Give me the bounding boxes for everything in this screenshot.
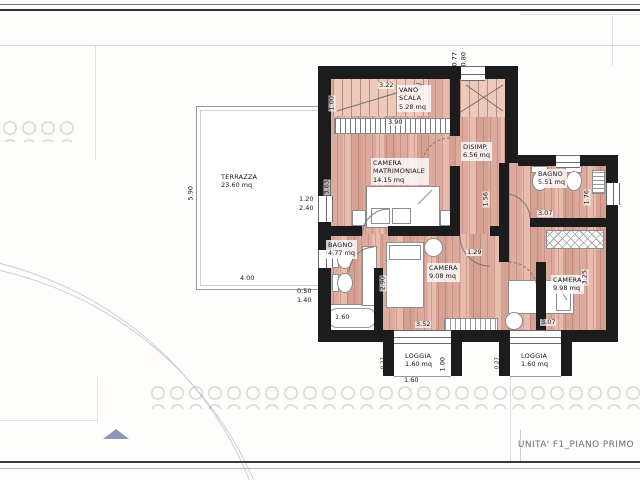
dim-3-22: 3.22 bbox=[378, 82, 394, 89]
dim-1-60-bathtub: 1.60 bbox=[334, 314, 350, 321]
dim-0-80-right: 0.80 bbox=[502, 356, 508, 370]
loggia-left-pier-2 bbox=[451, 330, 462, 376]
dim-0-80-left: 0.80 bbox=[388, 356, 394, 370]
room-area: 5.51 mq bbox=[538, 178, 565, 186]
dim-3-07-camera: 3.07 bbox=[540, 319, 556, 326]
dim-0-77: 0.77 bbox=[452, 51, 459, 67]
room-name: CAMERA bbox=[429, 264, 458, 272]
room-name: CAMERA MATRIMONIALE bbox=[373, 159, 427, 176]
bed-sheet-fold-line bbox=[418, 190, 432, 204]
wall-left-upper bbox=[318, 66, 331, 196]
loggia-right-pier-2 bbox=[561, 330, 572, 376]
room-name: LOGGIA bbox=[521, 352, 548, 360]
wall-top-left bbox=[318, 66, 461, 79]
wall-right-upper-block bbox=[505, 66, 518, 163]
room-label-loggia-right: LOGGIA 1.60 mq bbox=[519, 351, 550, 370]
room-area: 9.08 mq bbox=[429, 272, 458, 280]
room-label-disimpegno: DISIMP. 6.56 mq bbox=[461, 142, 492, 161]
room-label-bagno-right: BAGNO 5.51 mq bbox=[536, 169, 567, 188]
window-bagno-right bbox=[556, 155, 580, 168]
wall-matrimoniale-disimp-upper bbox=[450, 79, 460, 136]
dim-1-00-loggia: 1.00 bbox=[440, 356, 447, 372]
stair-cross-lines bbox=[459, 85, 503, 113]
wall-corridor-right bbox=[499, 163, 509, 262]
dim-1-29: 1.29 bbox=[466, 249, 482, 256]
room-label-vano-scala: VANO SCALA 5.28 mq bbox=[397, 85, 431, 112]
dim-4-00: 4.00 bbox=[239, 275, 255, 282]
dim-3-25: 3.25 bbox=[582, 269, 589, 285]
dim-1-00-stair: 1.00 bbox=[329, 95, 336, 111]
dim-1-60-loggia: 1.60 bbox=[403, 377, 419, 384]
window-right-wing bbox=[606, 183, 620, 205]
room-area: 9.98 mq bbox=[553, 284, 582, 292]
door-loggia-left bbox=[394, 330, 451, 344]
room-name: LOGGIA bbox=[405, 352, 432, 360]
room-area: 4.77 mq bbox=[328, 249, 355, 257]
dim-1-76: 1.76 bbox=[584, 189, 591, 205]
room-area: 6.56 mq bbox=[463, 151, 490, 159]
room-area: 23.60 mq bbox=[221, 181, 257, 189]
room-label-camera-matrimoniale: CAMERA MATRIMONIALE 14.15 mq bbox=[371, 158, 429, 185]
dim-0-27-left: 0.27 bbox=[381, 356, 387, 370]
dim-3-63: 3.63 bbox=[324, 179, 331, 195]
dim-2-90: 2.90 bbox=[380, 275, 387, 291]
room-area: 5.28 mq bbox=[399, 103, 429, 111]
room-name: BAGNO bbox=[538, 170, 565, 178]
dim-3-52: 3.52 bbox=[415, 321, 431, 328]
room-area: 1.60 mq bbox=[405, 360, 432, 368]
dim-1-56: 1.56 bbox=[483, 191, 490, 207]
room-name: BAGNO bbox=[328, 241, 355, 249]
wall-wing-top-left bbox=[518, 155, 556, 166]
room-name: CAMERA bbox=[553, 276, 582, 284]
dim-5-90: 5.90 bbox=[188, 185, 195, 201]
wall-bagnoright-camera bbox=[530, 218, 618, 227]
room-label-bagno-left: BAGNO 4.77 mq bbox=[326, 240, 357, 259]
dim-0-50: 0.50 bbox=[296, 288, 312, 295]
floor-plan-sheet: TERRAZZA 23.60 mq VANO SCALA 5.28 mq CAM… bbox=[0, 0, 640, 480]
room-name: VANO SCALA bbox=[399, 86, 429, 103]
dim-3-07-bagno: 3.07 bbox=[537, 210, 553, 217]
room-area: 14.15 mq bbox=[373, 176, 427, 184]
window-stairwell-top bbox=[461, 66, 485, 81]
dim-3-90: 3.90 bbox=[387, 119, 403, 126]
room-area: 1.60 mq bbox=[521, 360, 548, 368]
room-label-loggia-left: LOGGIA 1.60 mq bbox=[403, 351, 434, 370]
door-terrace bbox=[318, 196, 333, 222]
dim-0-27-right: 0.27 bbox=[495, 356, 501, 370]
room-label-camera-center: CAMERA 9.08 mq bbox=[427, 263, 460, 282]
wall-bottom-right bbox=[572, 330, 618, 342]
dim-1-40: 1.40 bbox=[296, 297, 312, 304]
dim-0-80-top: 0.80 bbox=[461, 51, 468, 67]
wall-matrimoniale-bagno bbox=[331, 226, 362, 236]
wall-bottom-center bbox=[462, 330, 499, 342]
room-name: DISIMP. bbox=[463, 143, 490, 151]
sheet-title: UNITA' F1_PIANO PRIMO bbox=[518, 440, 634, 450]
wall-matrimoniale-camera bbox=[388, 226, 460, 236]
door-loggia-right bbox=[510, 330, 561, 344]
dim-2-40: 2.40 bbox=[298, 205, 314, 212]
door-arc-matrimoniale bbox=[362, 209, 389, 236]
dim-1-20: 1.20 bbox=[298, 196, 314, 203]
door-arc-camera-right bbox=[509, 262, 537, 290]
room-label-camera-right: CAMERA 9.98 mq bbox=[551, 275, 584, 294]
wall-right-1 bbox=[606, 155, 618, 183]
room-name: TERRAZZA bbox=[221, 173, 257, 181]
room-label-terrazza: TERRAZZA 23.60 mq bbox=[219, 172, 259, 191]
